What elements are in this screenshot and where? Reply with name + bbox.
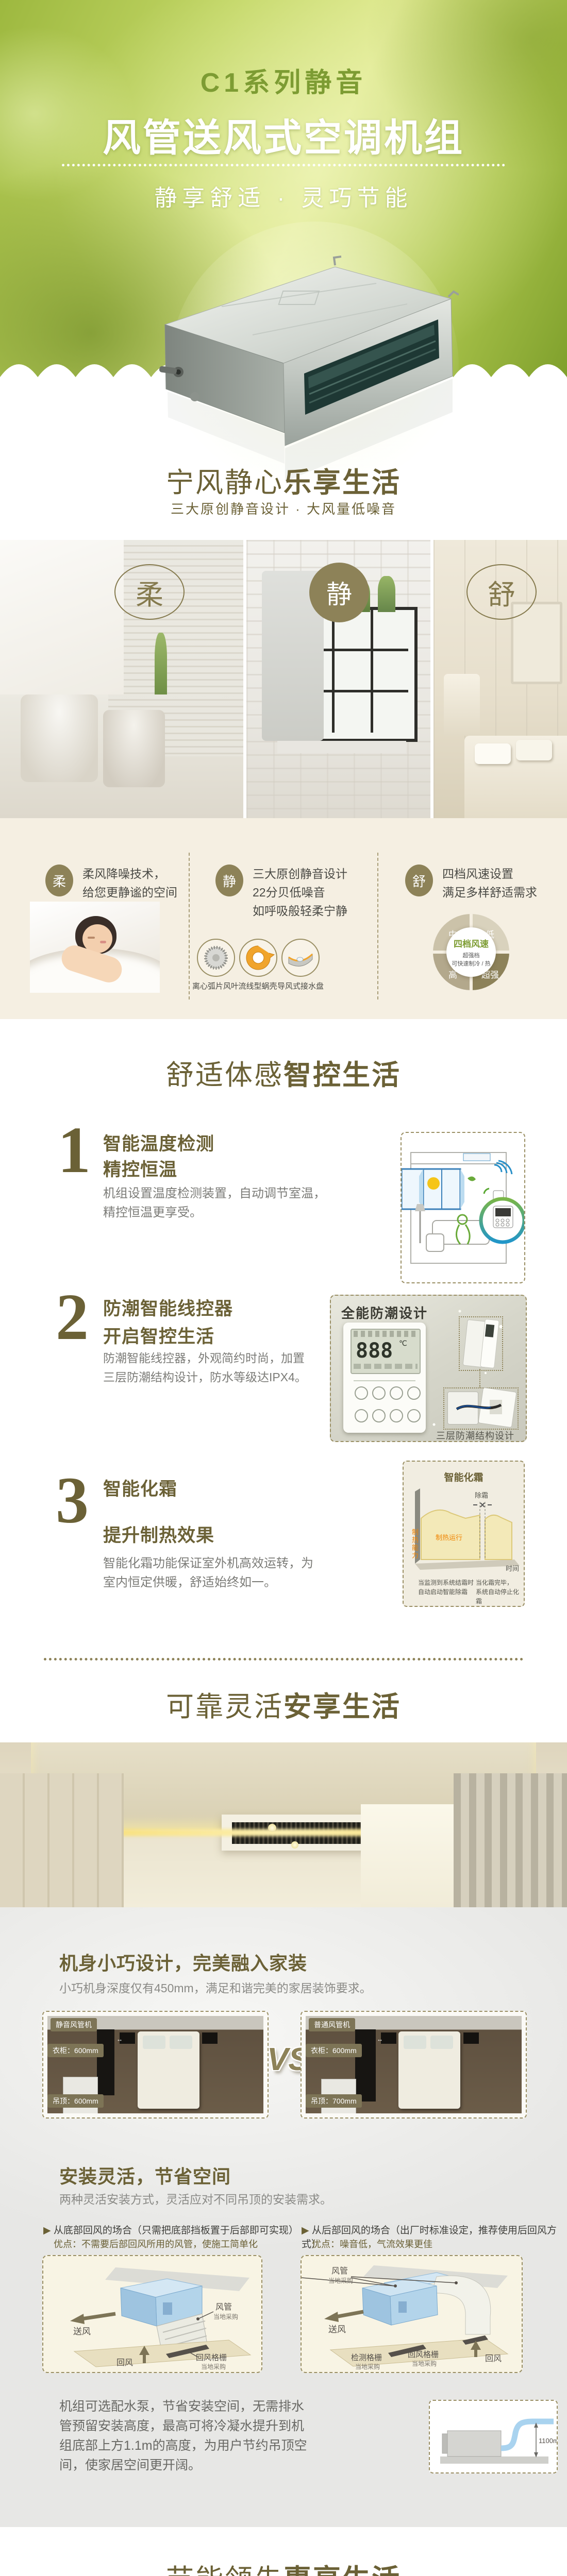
feature-badge-quiet: 静 — [215, 865, 243, 896]
photo-badge-comfort: 舒 — [466, 564, 537, 620]
pump-line3: 组底部上方1.1m的高度，为用户节约吊顶空 — [59, 2436, 307, 2455]
feature3-body-line1: 智能化霜功能保证室外机高效运转，为 — [103, 1554, 392, 1573]
hero-series-title: C1系列静音 — [0, 61, 567, 99]
drain-pan-icon — [281, 939, 320, 977]
svg-text:除霜: 除霜 — [475, 1492, 488, 1499]
pump-diagram: 1100mm — [430, 2401, 557, 2472]
svg-text:送风: 送风 — [328, 2325, 346, 2334]
lcd-unit: ℃ — [399, 1339, 407, 1348]
section2-title: 舒适体感智控生活 — [0, 1052, 567, 1093]
defrost-caption-2a: 当化霜完毕， — [476, 1578, 524, 1587]
plant — [155, 633, 167, 694]
compare-normal-label2: 吊顶：700mm — [306, 2094, 362, 2108]
feature-badge-soft: 柔 — [45, 865, 73, 896]
frame-connector-line — [479, 1369, 480, 1387]
wheel-center-title: 四档风速 — [454, 937, 489, 950]
wall-panels — [0, 1773, 124, 1907]
feature-quiet-line1: 三大原创静音设计 — [253, 865, 347, 883]
pump-paragraph: 机组可选配水泵，节省安装空间，无需排水 管预留安装高度，最高可将冷凝水提升到机 … — [59, 2397, 307, 2475]
wheel-center-line2: 可快速制冷 / 热 — [452, 959, 490, 968]
feature1-body-line2: 精控恒温更享受。 — [103, 1203, 392, 1222]
wheel-hub: 四档风速 超强档 可快速制冷 / 热 — [446, 927, 496, 977]
feature2-body: 防潮智能线控器，外观简约时尚，加置 三层防潮结构设计，防水等级达IPX4。 — [103, 1349, 320, 1387]
triple-layer-caption: 三层防潮结构设计 — [436, 1429, 514, 1442]
section-divider-dotted — [44, 1658, 523, 1660]
section1-subtitle: 三大原创静音设计 · 大风量低噪音 — [0, 499, 567, 518]
controller-lcd: 888 ℃ — [351, 1329, 421, 1374]
feature1-body: 机组设置温度检测装置，自动调节室温， 精控恒温更享受。 — [103, 1184, 392, 1222]
svg-text:送风: 送风 — [73, 2327, 91, 2336]
svg-text:风管: 风管 — [331, 2266, 348, 2276]
defrost-y-axis-label: 制热能力 — [410, 1529, 420, 1560]
product-detail-page: C1系列静音 风管送风式空调机组 静享舒适 · 灵巧节能 — [0, 0, 567, 2576]
hero-tagline: 静享舒适 · 灵巧节能 — [0, 179, 567, 212]
pump-diagram-box: 1100mm — [429, 2400, 558, 2473]
feature2-heading2: 开启智控生活 — [103, 1322, 214, 1348]
feature3-number: 3 — [56, 1467, 89, 1533]
defrost-chart-box: 智能化霜 除霜 制热运行 时间 制热能力 当监测到系统结霜时 自动启动智能除霜 … — [403, 1461, 525, 1607]
svg-text:当地采购: 当地采购 — [213, 2313, 238, 2320]
section3-title: 可靠灵活安享生活 — [0, 1684, 567, 1724]
pillow — [475, 743, 511, 764]
compare-normal-tag: 普通风管机 — [309, 2018, 355, 2031]
curtains — [454, 1773, 567, 1907]
install-left-header-text: 从底部回风的场合（只需把底部挡板置于后部即可实现） — [54, 2225, 298, 2236]
chair-shape-2 — [103, 710, 165, 787]
feature-badge-soft-label: 柔 — [53, 871, 66, 890]
install-sub: 两种灵活安装方式，灵活应对不同吊顶的安装需求。 — [59, 2190, 332, 2207]
feature-badge-comfort-label: 舒 — [412, 871, 426, 890]
pump-line1: 机组可选配水泵，节省安装空间，无需排水 — [59, 2397, 307, 2416]
feature1-heading1: 智能温度检测 — [103, 1129, 214, 1156]
wardrobe-2 — [355, 2029, 376, 2102]
install-left-adv: 优点：不需要后部回风所用的风管，使施工简单化 — [54, 2237, 258, 2250]
feature-soft-line2: 给您更静谧的空间 — [82, 883, 177, 902]
feature-badge-quiet-label: 静 — [223, 871, 236, 890]
defrost-caption-1a: 当监测到系统结霜时 — [418, 1578, 474, 1587]
defrost-chart-title: 智能化霜 — [404, 1470, 524, 1484]
feature-quiet-line2: 22分贝低噪音 — [253, 883, 347, 902]
volute-caption: 流线型蜗壳 — [237, 980, 278, 991]
svg-text:1100mm: 1100mm — [539, 2437, 557, 2445]
section1-title-thin: 宁风静心 — [166, 467, 283, 498]
compare-panel-quiet: ↔ 静音风管机 衣柜：600mm 吊顶：600mm — [42, 2011, 269, 2119]
feature1-illustration-box — [401, 1132, 525, 1283]
compare-panel-normal: ↔ 普通风管机 衣柜：600mm 吊顶：700mm — [301, 2011, 527, 2119]
install-right-adv: 优点：噪音低，气流效果更佳 — [312, 2237, 432, 2250]
photo-badge-quiet-label: 静 — [326, 574, 352, 611]
gap-arrow-2: ↔ — [377, 2036, 390, 2041]
lcd-digits: 888 — [356, 1339, 393, 1363]
feature-badge-comfort: 舒 — [405, 865, 433, 896]
volute-icon — [239, 939, 277, 977]
bottom-return-diagram-box: 送风 风管 当地采购 回风 回风格栅 当地采购 — [42, 2255, 262, 2373]
column-divider-2 — [377, 853, 378, 999]
photo-badge-comfort-label: 舒 — [488, 572, 515, 613]
rear-return-diagram: 风管 当地采购 送风 检测格栅 当地采购 回风格栅 当地采购 回风 — [302, 2256, 522, 2372]
feature2-controller-box: 全能防潮设计 888 ℃ — [330, 1295, 527, 1442]
feature3-body: 智能化霜功能保证室外机高效运转，为 室内恒定供暖，舒适始终如一。 — [103, 1554, 392, 1592]
sheer-window — [361, 1804, 454, 1907]
desk — [277, 741, 406, 753]
section4-title: 节能领先惠享生活 — [0, 2556, 567, 2576]
compare-quiet-label1: 衣柜：600mm — [47, 2044, 104, 2057]
nightstand-2 — [202, 2032, 218, 2044]
feature3-heading2: 提升制热效果 — [103, 1521, 214, 1547]
svg-text:制热运行: 制热运行 — [436, 1534, 462, 1541]
wired-controller: 888 ℃ — [343, 1323, 426, 1433]
feature-soft-line1: 柔风降噪技术， — [82, 865, 177, 883]
svg-text:当地采购: 当地采购 — [201, 2363, 226, 2370]
feature3-body-line2: 室内恒定供暖，舒适始终如一。 — [103, 1573, 392, 1592]
compact-heading: 机身小巧设计，完美融入家装 — [59, 1948, 307, 1975]
fan-speed-wheel: 中 低 高 超强 四档风速 超强档 可快速制冷 / 热 — [433, 914, 509, 990]
svg-text:回风格栅: 回风格栅 — [408, 2350, 439, 2359]
defrost-caption-2: 当化霜完毕， 系统自动停止化霜 — [476, 1578, 524, 1606]
hero-dotted-divider — [62, 164, 505, 166]
svg-text:时间: 时间 — [506, 1565, 519, 1572]
moistureproof-title: 全能防潮设计 — [341, 1303, 428, 1322]
rear-return-diagram-box: 风管 当地采购 送风 检测格栅 当地采购 回风格栅 当地采购 回风 — [301, 2255, 523, 2373]
spotlight-1 — [268, 1824, 276, 1832]
feature-comfort-line2: 满足多样舒适需求 — [442, 883, 537, 902]
bed-topview — [138, 2031, 199, 2109]
smart-temp-illustration — [402, 1133, 524, 1282]
plant-3 — [378, 576, 395, 612]
section2-title-thin: 舒适体感 — [166, 1060, 283, 1091]
feature-quiet-line3: 如呼吸般轻柔宁静 — [253, 902, 347, 920]
nightstand-4 — [463, 2032, 479, 2044]
feature-comfort-line1: 四档风速设置 — [442, 865, 537, 883]
svg-text:当地采购: 当地采购 — [355, 2363, 380, 2370]
sleeping-woman-photo — [30, 902, 160, 993]
compact-sub: 小巧机身深度仅有450mm，满足和谐完美的家居装饰要求。 — [59, 1978, 372, 1996]
photo-badge-soft-label: 柔 — [136, 572, 163, 613]
section4-title-thin: 节能领先 — [166, 2564, 283, 2576]
defrost-caption-2b: 系统自动停止化霜 — [476, 1587, 524, 1606]
drain-pan-caption: 导风式接水盘 — [277, 980, 324, 991]
feature-text-comfort: 四档风速设置 满足多样舒适需求 — [442, 865, 537, 902]
gap-arrow: ↔ — [116, 2036, 130, 2041]
wheel-center-line1: 超强档 — [463, 951, 480, 959]
section3-title-thin: 可靠灵活 — [166, 1691, 283, 1722]
svg-text:回风: 回风 — [116, 2359, 133, 2367]
pillow-2 — [516, 740, 552, 760]
ceiling-light — [0, 540, 124, 694]
feature2-heading1: 防潮智能线控器 — [103, 1294, 233, 1320]
svg-text:回风: 回风 — [485, 2354, 502, 2363]
svg-text:风管: 风管 — [215, 2302, 232, 2312]
svg-text:当地采购: 当地采购 — [328, 2277, 353, 2284]
feature2-number: 2 — [56, 1284, 89, 1350]
hero-main-title: 风管送风式空调机组 — [0, 107, 567, 162]
photo-badge-quiet: 静 — [309, 563, 369, 622]
feature1-number: 1 — [58, 1117, 91, 1183]
spotlight-2 — [291, 1841, 298, 1849]
pump-line4: 间，使家居空间更开阔。 — [59, 2455, 307, 2475]
defrost-caption-1b: 自动启动智能除霜 — [418, 1587, 474, 1597]
svg-text:回风格栅: 回风格栅 — [196, 2353, 227, 2362]
section3-title-bold: 安享生活 — [283, 1691, 401, 1722]
defrost-chart: 除霜 制热运行 时间 — [404, 1482, 524, 1575]
controller-side-view-frame — [459, 1316, 503, 1371]
compare-normal-label1: 衣柜：600mm — [306, 2044, 362, 2057]
feature1-heading2: 精控恒温 — [103, 1155, 177, 1181]
feature1-body-line1: 机组设置温度检测装置，自动调节室温， — [103, 1184, 392, 1203]
svg-text:当地采购: 当地采购 — [412, 2360, 437, 2367]
photo-badge-soft: 柔 — [114, 564, 185, 620]
junction-box-frame — [443, 1387, 519, 1430]
section4-title-bold: 惠享生活 — [283, 2564, 401, 2576]
compare-quiet-label2: 吊顶：600mm — [47, 2094, 104, 2108]
bedroom-ceiling-photo — [0, 1742, 567, 1907]
bottom-return-diagram: 送风 风管 当地采购 回风 回风格栅 当地采购 — [43, 2256, 261, 2372]
feature2-body-line2: 三层防潮结构设计，防水等级达IPX4。 — [103, 1368, 320, 1387]
svg-text:检测格栅: 检测格栅 — [351, 2353, 382, 2362]
bed-topview-2 — [398, 2031, 460, 2109]
section1-title: 宁风静心乐享生活 — [0, 460, 567, 500]
section2-title-bold: 智控生活 — [283, 1060, 401, 1091]
defrost-caption-1: 当监测到系统结霜时 自动启动智能除霜 — [418, 1578, 474, 1597]
fan-wheel-icon — [197, 939, 235, 977]
feature3-heading1: 智能化霜 — [103, 1475, 177, 1501]
feature-text-soft: 柔风降噪技术， 给您更静谧的空间 — [82, 865, 177, 902]
fan-wheel-caption: 离心弧片风叶 — [192, 980, 239, 991]
column-divider-1 — [189, 853, 190, 999]
install-heading: 安装灵活，节省空间 — [59, 2162, 231, 2189]
compare-quiet-tag: 静音风管机 — [51, 2018, 97, 2031]
chair-shape — [21, 694, 98, 782]
feature-text-quiet: 三大原创静音设计 22分贝低噪音 如呼吸般轻柔宁静 — [253, 865, 347, 920]
wardrobe — [97, 2029, 114, 2095]
install-left-header: ▶ 从底部回风的场合（只需把底部挡板置于后部即可实现） — [43, 2223, 298, 2236]
lamp-shade — [444, 674, 480, 736]
feature2-body-line1: 防潮智能线控器，外观简约时尚，加置 — [103, 1349, 320, 1368]
pump-line2: 管预留安装高度，最高可将冷凝水提升到机 — [59, 2416, 307, 2436]
section1-title-bold: 乐享生活 — [283, 467, 401, 498]
